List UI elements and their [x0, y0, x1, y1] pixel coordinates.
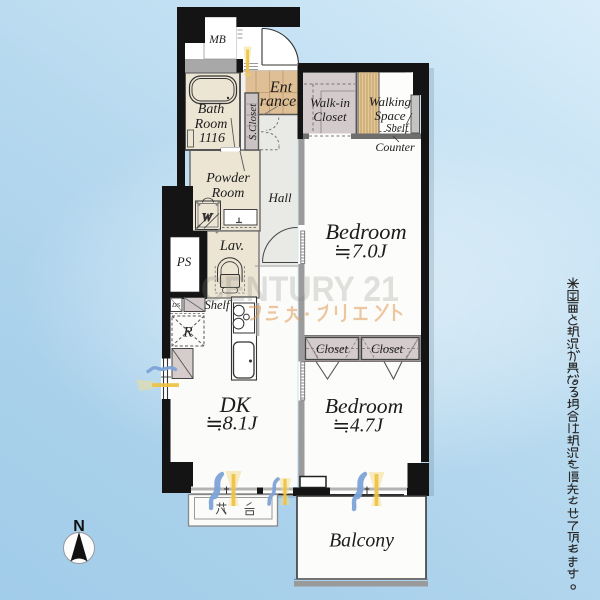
svg-text:W: W [202, 210, 213, 224]
svg-text:CENTURY 21: CENTURY 21 [201, 269, 399, 309]
svg-text:PS: PS [176, 254, 192, 269]
svg-text:Room: Room [194, 117, 228, 132]
svg-text:Bedroom: Bedroom [325, 394, 403, 418]
svg-text:Space: Space [374, 108, 405, 123]
svg-text:MB: MB [208, 34, 226, 46]
svg-text:Closet: Closet [371, 342, 403, 356]
svg-text:Bath: Bath [198, 102, 224, 117]
svg-text:Room: Room [211, 186, 245, 201]
svg-text:Lav.: Lav. [219, 238, 244, 254]
svg-text:N: N [73, 518, 85, 535]
svg-text:Walk-in: Walk-in [310, 95, 350, 110]
svg-text:rance: rance [260, 93, 296, 110]
svg-text:Closet: Closet [316, 342, 348, 356]
svg-text:Hall: Hall [267, 190, 292, 205]
svg-text:Counter: Counter [375, 140, 415, 154]
svg-text:Closet: Closet [313, 109, 347, 124]
svg-text:Balcony: Balcony [329, 530, 394, 552]
svg-text:1116: 1116 [199, 131, 225, 146]
svg-text:8.1J: 8.1J [223, 413, 259, 435]
svg-text:DS: DS [171, 302, 181, 309]
svg-text:7.0J: 7.0J [352, 241, 388, 263]
svg-text:S.Closet: S.Closet [247, 103, 259, 140]
svg-text:Powder: Powder [205, 171, 250, 186]
svg-text:Walking: Walking [369, 94, 412, 109]
svg-text:4.7J: 4.7J [350, 416, 384, 437]
svg-text:R: R [182, 325, 192, 341]
